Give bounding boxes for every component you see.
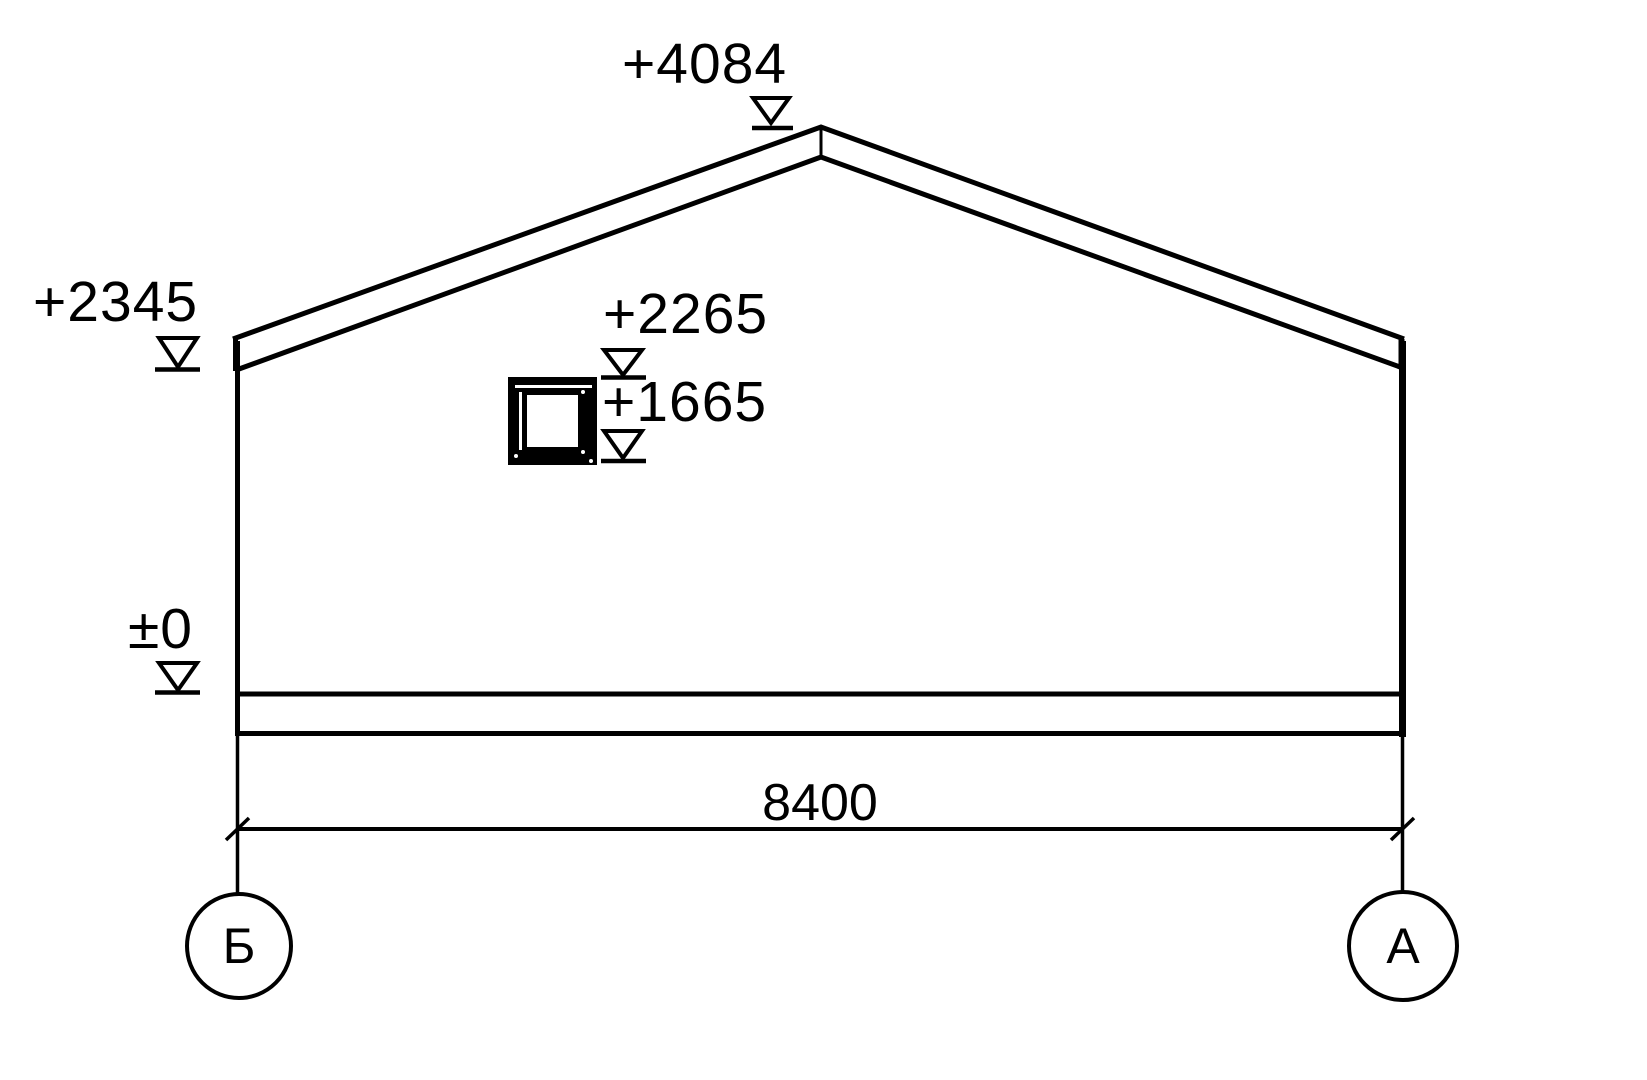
opening-dot bbox=[581, 450, 585, 454]
roof-inner-line bbox=[239, 157, 1400, 369]
elevation-mark-icon-opening-bottom bbox=[601, 431, 646, 461]
axis-label-a: А bbox=[1349, 892, 1457, 1000]
elevation-label-eave: +2345 bbox=[33, 274, 198, 331]
elevation-label-ground: ±0 bbox=[128, 601, 193, 658]
opening-dot bbox=[581, 390, 585, 394]
opening-dot bbox=[589, 459, 593, 463]
opening-dot bbox=[514, 454, 518, 458]
elevation-label-opening-top: +2265 bbox=[603, 286, 768, 343]
opening-glass bbox=[527, 395, 578, 447]
elevation-mark-icon-roof-peak bbox=[752, 98, 793, 128]
elevation-drawing: +4084 +2345 +2265 +1665 ±0 8400 Б А bbox=[0, 0, 1647, 1080]
elevation-mark-icon-eave bbox=[155, 338, 200, 370]
window-opening bbox=[508, 377, 597, 465]
elevation-mark-icon-ground bbox=[155, 663, 200, 693]
dimension-label-overall-width: 8400 bbox=[755, 777, 885, 829]
elevation-label-roof-peak: +4084 bbox=[622, 36, 787, 93]
elevation-label-opening-bottom: +1665 bbox=[602, 374, 767, 431]
axis-label-b: Б bbox=[187, 894, 291, 998]
